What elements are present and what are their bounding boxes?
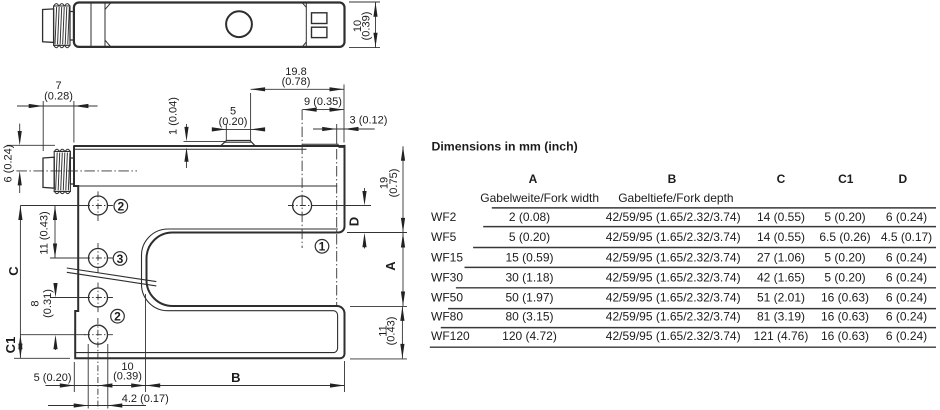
svg-text:C: C [777,172,786,186]
svg-text:2: 2 [117,200,124,214]
svg-text:2 (0.08): 2 (0.08) [509,210,550,224]
svg-text:80 (3.15): 80 (3.15) [505,310,553,324]
svg-text:Dimensions in mm (inch): Dimensions in mm (inch) [432,140,578,154]
svg-text:B: B [231,370,240,385]
svg-text:D: D [898,172,907,186]
svg-text:6 (0.24): 6 (0.24) [3,145,15,183]
svg-text:WF80: WF80 [431,310,463,324]
svg-text:42/59/95 (1.65/2.32/3.74): 42/59/95 (1.65/2.32/3.74) [606,310,741,324]
svg-text:121 (4.76): 121 (4.76) [754,329,809,343]
svg-text:42/59/95 (1.65/2.32/3.74): 42/59/95 (1.65/2.32/3.74) [606,290,741,304]
svg-text:B: B [668,172,677,186]
svg-text:14 (0.55): 14 (0.55) [757,230,805,244]
svg-text:WF2: WF2 [431,210,457,224]
svg-text:42/59/95 (1.65/2.32/3.74): 42/59/95 (1.65/2.32/3.74) [606,210,741,224]
svg-text:50 (1.97): 50 (1.97) [505,290,553,304]
svg-text:C1: C1 [838,172,854,186]
svg-text:4.2 (0.17): 4.2 (0.17) [122,393,169,405]
svg-text:11 (0.43): 11 (0.43) [39,211,51,254]
svg-text:2: 2 [114,310,121,324]
svg-text:42/59/95 (1.65/2.32/3.74): 42/59/95 (1.65/2.32/3.74) [606,270,741,284]
svg-text:(0.78): (0.78) [282,76,311,88]
svg-text:(0.39): (0.39) [113,371,142,383]
svg-text:A: A [383,261,398,271]
svg-text:(0.75): (0.75) [388,169,400,198]
svg-text:Gabelweite/Fork width: Gabelweite/Fork width [480,191,599,205]
svg-text:5 (0.20): 5 (0.20) [509,230,550,244]
svg-text:(0.43): (0.43) [386,317,398,346]
svg-text:6.5 (0.26): 6.5 (0.26) [819,230,870,244]
svg-text:6 (0.24): 6 (0.24) [886,250,927,264]
svg-text:120 (4.72): 120 (4.72) [502,329,557,343]
svg-text:WF120: WF120 [431,329,470,343]
svg-text:9 (0.35): 9 (0.35) [304,96,342,108]
svg-text:5 (0.20): 5 (0.20) [824,270,865,284]
svg-text:3 (0.12): 3 (0.12) [350,115,388,127]
svg-text:42/59/95 (1.65/2.32/3.74): 42/59/95 (1.65/2.32/3.74) [606,250,741,264]
svg-text:WF50: WF50 [431,290,463,304]
svg-text:5 (0.20): 5 (0.20) [34,372,72,384]
svg-text:WF5: WF5 [431,230,457,244]
svg-text:C1: C1 [3,337,18,354]
svg-text:6 (0.24): 6 (0.24) [886,290,927,304]
svg-text:81 (3.19): 81 (3.19) [757,310,805,324]
svg-text:8: 8 [30,300,42,306]
svg-text:A: A [529,172,538,186]
svg-text:(0.20): (0.20) [219,116,248,128]
svg-text:(0.39): (0.39) [360,12,372,41]
svg-text:27 (1.06): 27 (1.06) [757,250,805,264]
svg-text:42 (1.65): 42 (1.65) [757,270,805,284]
svg-text:6 (0.24): 6 (0.24) [886,210,927,224]
svg-text:WF15: WF15 [431,250,463,264]
svg-text:Gabeltiefe/Fork depth: Gabeltiefe/Fork depth [618,191,733,205]
svg-text:16 (0.63): 16 (0.63) [821,290,869,304]
svg-text:WF30: WF30 [431,270,463,284]
svg-text:15 (0.59): 15 (0.59) [505,250,553,264]
svg-text:(0.28): (0.28) [44,90,73,102]
svg-text:6 (0.24): 6 (0.24) [886,329,927,343]
svg-text:3: 3 [117,252,124,266]
svg-text:1 (0.04): 1 (0.04) [168,97,180,135]
svg-text:5 (0.20): 5 (0.20) [824,210,865,224]
svg-text:42/59/95 (1.65/2.32/3.74): 42/59/95 (1.65/2.32/3.74) [606,329,741,343]
svg-text:51 (2.01): 51 (2.01) [757,290,805,304]
svg-text:1: 1 [319,240,326,254]
svg-text:6 (0.24): 6 (0.24) [886,310,927,324]
svg-text:C: C [6,266,21,276]
svg-text:4.5 (0.17): 4.5 (0.17) [881,230,932,244]
svg-text:30 (1.18): 30 (1.18) [505,270,553,284]
svg-text:6 (0.24): 6 (0.24) [886,270,927,284]
svg-text:42/59/95 (1.65/2.32/3.74): 42/59/95 (1.65/2.32/3.74) [606,230,741,244]
svg-text:16 (0.63): 16 (0.63) [821,329,869,343]
svg-text:5 (0.20): 5 (0.20) [824,250,865,264]
svg-text:14 (0.55): 14 (0.55) [757,210,805,224]
svg-text:D: D [347,217,362,226]
svg-text:(0.31): (0.31) [42,289,54,318]
svg-text:16 (0.63): 16 (0.63) [821,310,869,324]
